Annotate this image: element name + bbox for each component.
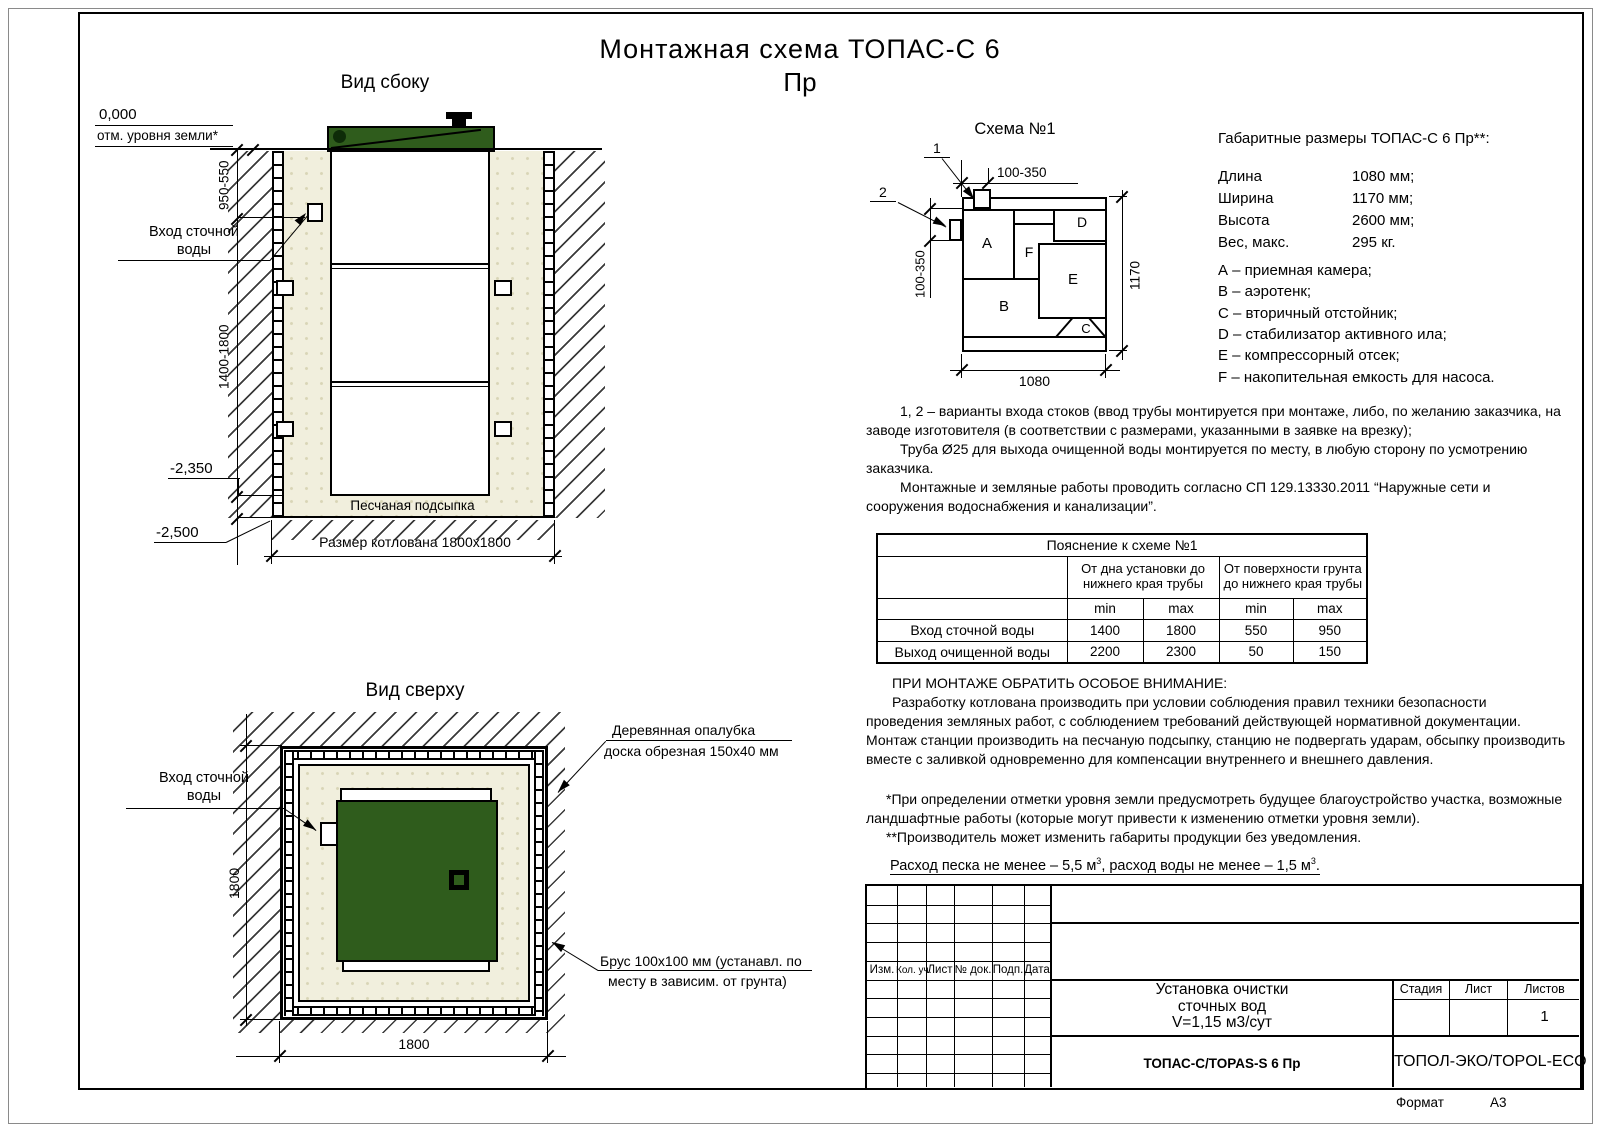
formwork-callout-underline <box>606 740 792 741</box>
lid-latch-circle <box>333 130 346 143</box>
table-max-2: max <box>1293 598 1367 619</box>
legend-item-c: С – вторичный отстойник; <box>1218 305 1397 322</box>
wall-a-right <box>1013 211 1015 278</box>
vent-square-topview <box>449 870 469 890</box>
formwork-callout-1: Деревянная опалубка <box>612 722 755 738</box>
soil-hatch-left <box>228 151 272 518</box>
elev-2350-underline <box>168 478 240 479</box>
sch-dimright-ext1 <box>1109 196 1127 197</box>
rev-grid-line <box>867 961 1050 962</box>
rev-grid-line <box>867 1017 1050 1018</box>
vent-cap <box>446 112 472 119</box>
inlet-label-underline <box>118 260 270 261</box>
rev-header-list: Лист <box>926 964 954 977</box>
formwork-left-strip <box>284 750 294 1016</box>
ground-label-underline <box>95 146 233 147</box>
tv-dim-vline <box>246 714 247 1026</box>
legend-item-f: F – накопительная емкость для насоса. <box>1218 369 1495 386</box>
table-row: Вход сточной воды 1400 1800 550 950 <box>877 619 1367 641</box>
schema-title: Схема №1 <box>940 120 1090 139</box>
wall-a-b <box>964 278 1040 280</box>
ext-inlet-level <box>237 217 305 218</box>
inlet-pipe-topview <box>320 822 338 846</box>
table-empty-cell <box>877 556 1067 598</box>
zero-underline <box>95 125 233 126</box>
drawing-subtitle: Пр <box>570 68 1030 98</box>
tank-clip-top-left <box>276 280 294 296</box>
rev-grid-line <box>867 998 1050 999</box>
drawing-title: Монтажная схема ТОПАС-С 6 <box>570 34 1030 65</box>
dim-row-value-1: 1170 мм; <box>1352 190 1413 207</box>
footnote-1: *При определении отметки уровня земли пр… <box>866 790 1572 828</box>
sch-dimtop-ext1 <box>961 160 962 197</box>
elev-2500: -2,500 <box>156 524 199 541</box>
sheets-value: 1 <box>1508 1008 1581 1025</box>
wall-d-left <box>1053 211 1055 242</box>
zero-mark: 0,000 <box>99 106 137 123</box>
pit-size-label: Размер котлована 1800x1800 <box>280 534 550 550</box>
schema-inlet-1 <box>973 189 991 209</box>
pointer-2-underline <box>870 201 896 202</box>
note-variants-p2: Труба Ø25 для выхода очищенной воды монт… <box>866 440 1566 478</box>
legend-item-e: E – компрессорный отсек; <box>1218 347 1400 364</box>
sch-dimbot-line <box>950 370 1120 371</box>
rev-grid-line <box>867 1054 1050 1055</box>
rev-header-podp: Подп. <box>992 964 1024 977</box>
tank-divider-2 <box>332 381 488 383</box>
dim-950-550: 950-550 <box>214 152 234 218</box>
tv-dim-1800-h: 1800 <box>346 1036 482 1052</box>
dim-row-value-0: 1080 мм; <box>1352 168 1414 185</box>
pit-dim-line <box>264 556 562 557</box>
pointer-1-label: 1 <box>933 140 941 156</box>
sheets-label: Листов <box>1508 982 1581 996</box>
compartment-a-label: A <box>975 235 999 252</box>
legend-item-b: В – аэротенк; <box>1218 283 1311 300</box>
table-group-header-1: От дна установки до нижнего края трубы <box>1067 556 1219 598</box>
formwork-bottom-strip <box>284 1006 544 1016</box>
rev-header-ndok: № док. <box>954 964 992 977</box>
sch-dimleft-ext1 <box>930 208 962 209</box>
sch-dimtop-line <box>953 183 1078 184</box>
rev-grid-line <box>926 886 927 1087</box>
table-row: Выход очищенной воды 2200 2300 50 150 <box>877 641 1367 663</box>
tb-line <box>1050 922 1579 924</box>
elev-2500-underline <box>154 542 226 543</box>
rev-grid-line <box>867 1036 1050 1037</box>
inlet-label-side-2: воды <box>118 242 270 259</box>
compartment-f-label: F <box>1018 244 1040 260</box>
rev-grid-line <box>867 1073 1050 1074</box>
dim-row-label-0: Длина <box>1218 168 1262 185</box>
compartment-e-label: E <box>1062 271 1084 288</box>
sch-dimbot-text: 1080 <box>997 373 1072 389</box>
tank-clip-bottom-right <box>494 421 512 437</box>
inlet-label-top-1: Вход сточной <box>128 770 280 787</box>
dimensions-heading: Габаритные размеры ТОПАС-С 6 Пр**: <box>1218 130 1490 147</box>
title-block: Изм. Кол. уч. Лист № док. Подп. Дата Ста… <box>865 884 1582 1090</box>
consumption-note: Расход песка не менее – 5,5 м3, расход в… <box>890 856 1320 875</box>
doc-name: Установка очистки сточных вод V=1,15 м3/… <box>1057 982 1387 1032</box>
compartment-c-label: C <box>1075 322 1097 337</box>
table-max-1: max <box>1143 598 1219 619</box>
ext-tank-base <box>237 495 284 496</box>
elev-2350: -2,350 <box>170 460 213 477</box>
footnotes-block: *При определении отметки уровня земли пр… <box>866 790 1572 853</box>
tv-hdim-line <box>236 1056 566 1057</box>
dim-row-label-3: Вес, макс. <box>1218 234 1289 251</box>
pointer-1-underline <box>924 157 950 158</box>
tb-line <box>1050 1035 1579 1037</box>
attention-body: Разработку котлована производить при усл… <box>866 693 1566 769</box>
tb-line <box>1392 999 1579 1000</box>
rev-grid-divider <box>1050 886 1052 1087</box>
sch-dimright-text: 1170 <box>1126 243 1144 307</box>
explanation-table: Пояснение к схеме №1 От дна установки до… <box>876 533 1368 664</box>
table-title: Пояснение к схеме №1 <box>877 534 1367 556</box>
dim-row-label-1: Ширина <box>1218 190 1273 207</box>
rev-grid-line <box>867 942 1050 943</box>
wall-f-top <box>1013 223 1055 225</box>
sand-backfill-right <box>490 151 543 494</box>
dim-row-value-3: 295 кг. <box>1352 234 1396 251</box>
dim-1400-1800: 1400-1800 <box>214 292 234 422</box>
tank-divider-2b <box>332 386 488 387</box>
dim-vline <box>237 150 238 565</box>
excavation-bottom-line <box>272 516 555 518</box>
table-group-header-2: От поверхности грунта до нижнего края тр… <box>1219 556 1367 598</box>
beam-callout-underline <box>598 970 812 971</box>
sch-dimleft-ext2 <box>930 240 949 241</box>
format-value: А3 <box>1490 1095 1507 1111</box>
schema-inlet-2 <box>949 219 962 241</box>
tank-clip-bottom-left <box>276 421 294 437</box>
dim-row-value-2: 2600 мм; <box>1352 212 1414 229</box>
rev-grid-line <box>867 923 1050 924</box>
tank-body <box>330 150 490 496</box>
rev-grid-line <box>1024 886 1025 1087</box>
elev-2350-drop <box>238 478 239 496</box>
formwork-top-strip <box>284 750 544 760</box>
footnote-2: **Производитель может изменить габариты … <box>866 828 1572 847</box>
company-name: ТОПОЛ-ЭКО/TOPOL-ECO <box>1394 1053 1580 1071</box>
formwork-right-strip <box>534 750 544 1016</box>
model-designation: ТОПАС-С/TOPAS-S 6 Пр <box>1057 1056 1387 1072</box>
dim-row-label-2: Высота <box>1218 212 1270 229</box>
attention-block: ПРИ МОНТАЖЕ ОБРАТИТЬ ОСОБОЕ ВНИМАНИЕ: Ра… <box>866 674 1566 775</box>
note-variants-p1: 1, 2 – варианты входа стоков (ввод трубы… <box>866 402 1566 440</box>
formwork-callout-2: доска обрезная 150x40 мм <box>604 743 779 759</box>
legend-item-a: А – приемная камера; <box>1218 262 1372 279</box>
beam-callout-1: Брус 100x100 мм (устанавл. по <box>600 953 802 969</box>
ext-pit-bottom <box>237 517 272 518</box>
tv-dim-1800-v: 1800 <box>224 823 244 943</box>
pointer-2-label: 2 <box>879 184 887 200</box>
sch-dimleft-line <box>930 198 931 298</box>
attention-title: ПРИ МОНТАЖЕ ОБРАТИТЬ ОСОБОЕ ВНИМАНИЕ: <box>866 674 1566 693</box>
stage-label: Стадия <box>1393 982 1449 996</box>
sch-dimleft-text: 100-350 <box>911 243 929 305</box>
note-works: Монтажные и земляные работы проводить со… <box>866 478 1566 522</box>
schema-top-strip <box>964 209 1105 211</box>
soil-hatch-right <box>555 151 605 518</box>
sch-dimright-ext2 <box>1109 350 1127 351</box>
vent-stem <box>452 119 466 127</box>
legend-item-d: D – стабилизатор активного ила; <box>1218 326 1447 343</box>
tank-lid-topview <box>336 800 498 962</box>
lid-flange-bottom <box>342 960 490 972</box>
rev-grid-line <box>867 905 1050 906</box>
formwork-left <box>272 151 284 518</box>
inlet-label-top-2: воды <box>128 788 280 805</box>
top-view-title: Вид сверху <box>330 680 500 702</box>
tb-line <box>1050 979 1579 981</box>
rev-header-koluch: Кол. уч. <box>896 965 926 977</box>
ground-level-label: отм. уровня земли* <box>97 128 218 144</box>
tank-clip-top-right <box>494 280 512 296</box>
compartment-b-label: B <box>992 298 1016 315</box>
sch-dimbot-ext1 <box>961 354 962 378</box>
rev-grid-line <box>954 886 955 1087</box>
rev-header-izm: Изм. <box>867 964 897 977</box>
sheet-label: Лист <box>1450 982 1507 996</box>
beam-callout-2: месту в зависим. от грунта) <box>608 973 787 989</box>
table-min-2: min <box>1219 598 1293 619</box>
sch-dimtop-text: 100-350 <box>997 165 1047 181</box>
tank-divider-1 <box>332 263 488 265</box>
side-view-title: Вид сбоку <box>300 72 470 94</box>
tank-divider-1b <box>332 268 488 269</box>
sch-dimbot-ext2 <box>1105 354 1106 378</box>
sch-dimright-line <box>1122 190 1123 360</box>
formwork-right <box>543 151 555 518</box>
compartment-d-label: D <box>1071 214 1093 230</box>
drawing-page: Монтажная схема ТОПАС-С 6 Пр Вид сбоку 0… <box>0 0 1600 1131</box>
rev-grid-line <box>897 886 898 1087</box>
inlet-label-side-1: Вход сточной <box>118 224 270 241</box>
inlet-pipe-side <box>307 203 323 222</box>
wall-d-bottom <box>1053 240 1107 242</box>
rev-grid-line <box>867 980 1050 981</box>
sand-bed-label: Песчаная подсыпка <box>300 498 525 514</box>
table-min-1: min <box>1067 598 1143 619</box>
inlet-label-top-underline <box>126 808 284 809</box>
rev-header-data: Дата <box>1024 964 1050 977</box>
note-inlet-variants: 1, 2 – варианты входа стоков (ввод трубы… <box>866 402 1566 484</box>
rev-grid-line <box>992 886 993 1087</box>
ground-line <box>210 148 602 150</box>
format-label: Формат <box>1396 1095 1444 1111</box>
